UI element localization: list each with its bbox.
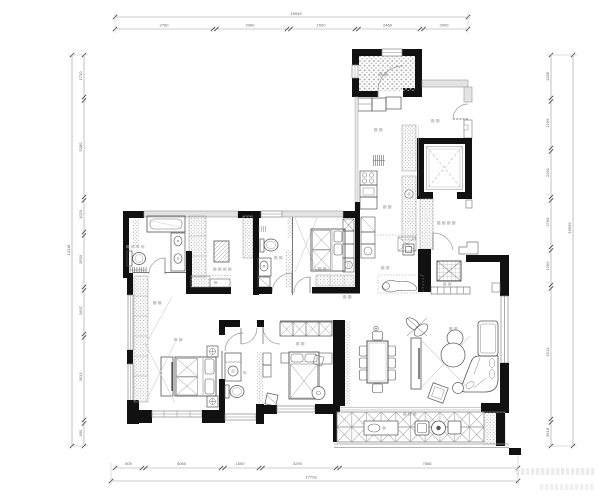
svg-text:2460: 2460 xyxy=(383,23,393,28)
svg-text:2760: 2760 xyxy=(160,23,170,28)
svg-text:2000: 2000 xyxy=(440,23,450,28)
svg-text:2159: 2159 xyxy=(545,118,550,128)
svg-text:600: 600 xyxy=(125,461,132,466)
svg-text:2650: 2650 xyxy=(78,254,83,264)
svg-text:1500: 1500 xyxy=(236,461,246,466)
svg-text:5060: 5060 xyxy=(177,461,187,466)
svg-text:5213: 5213 xyxy=(545,347,550,357)
svg-text:16569: 16569 xyxy=(567,222,572,234)
svg-text:1250: 1250 xyxy=(545,261,550,271)
svg-text:2261: 2261 xyxy=(545,167,550,177)
svg-text:3290: 3290 xyxy=(293,461,303,466)
svg-text:7566: 7566 xyxy=(423,461,433,466)
svg-text:2799: 2799 xyxy=(545,217,550,227)
svg-text:1710: 1710 xyxy=(78,71,83,81)
svg-text:1020: 1020 xyxy=(78,209,83,219)
svg-text:1618: 1618 xyxy=(545,427,550,437)
svg-text:3913: 3913 xyxy=(78,372,83,382)
svg-text:2607: 2607 xyxy=(78,305,83,315)
svg-text:2060: 2060 xyxy=(246,23,256,28)
svg-text:15949: 15949 xyxy=(290,11,302,16)
svg-text:14118: 14118 xyxy=(66,244,71,256)
svg-text:600: 600 xyxy=(78,429,83,436)
svg-text:17728: 17728 xyxy=(305,475,317,480)
svg-text:5280: 5280 xyxy=(78,142,83,152)
svg-text:1520: 1520 xyxy=(317,23,327,28)
svg-text:1286: 1286 xyxy=(545,71,550,81)
